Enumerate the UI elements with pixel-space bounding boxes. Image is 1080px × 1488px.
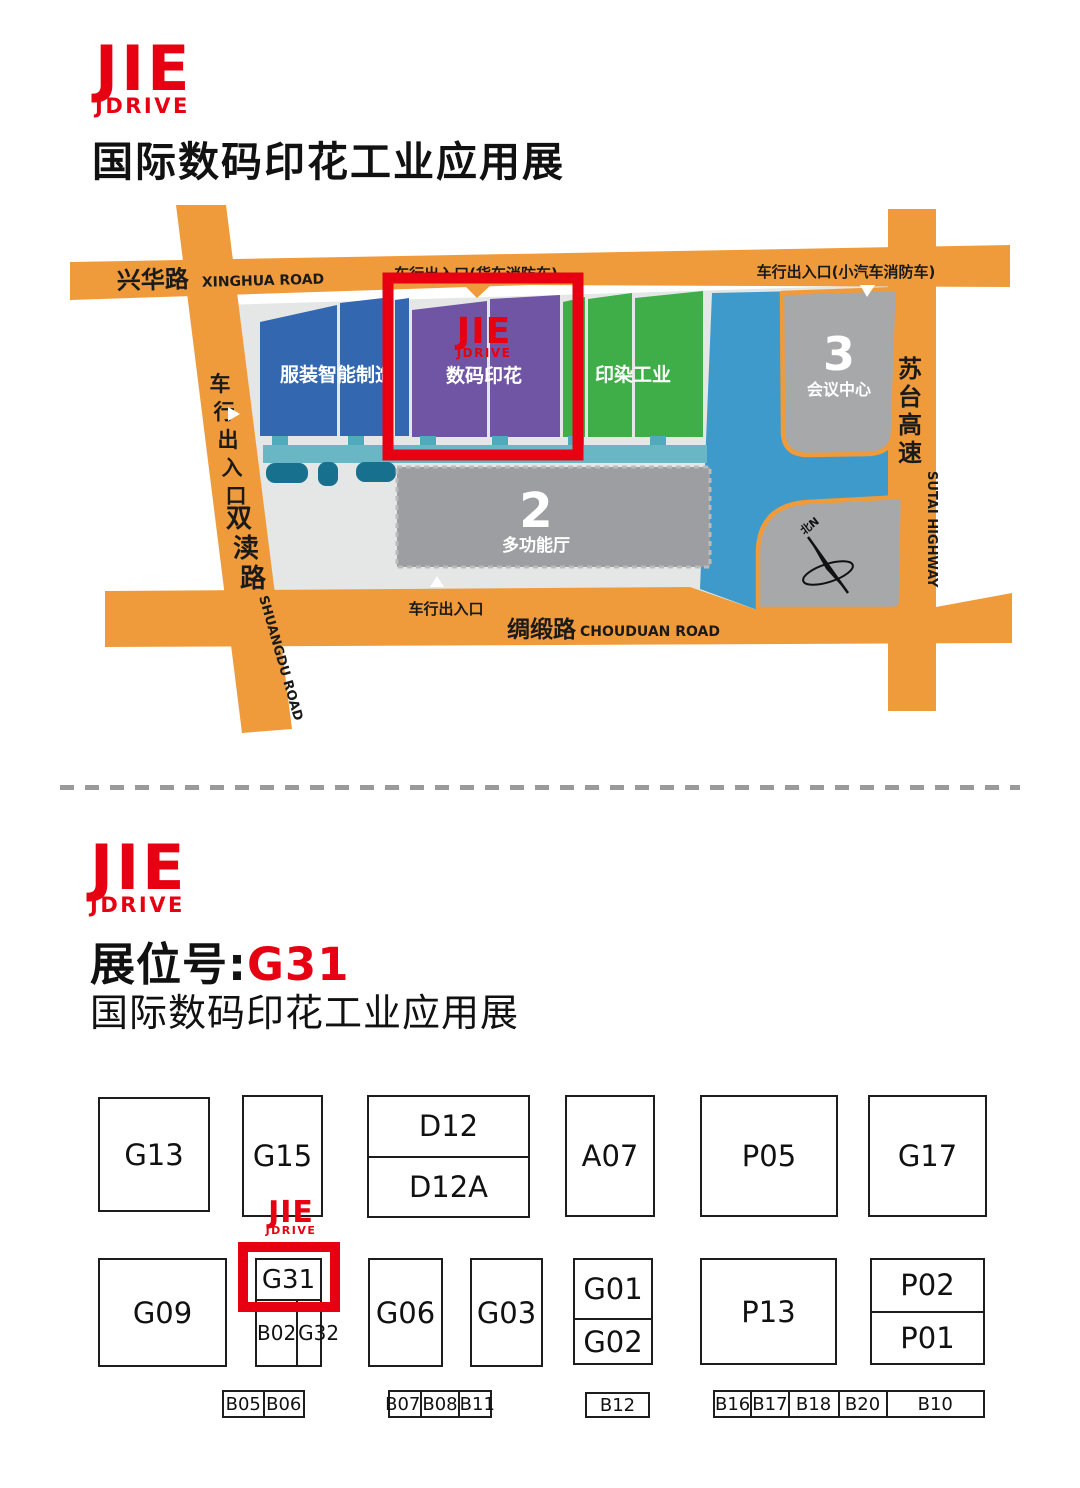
hall-garment-3 <box>395 298 409 436</box>
dock-support <box>650 436 666 446</box>
booth-p02: P02 <box>872 1260 983 1311</box>
booth-b05: B05 <box>224 1392 263 1416</box>
booth-b06: B06 <box>263 1392 304 1416</box>
booth-b05-b06-strip: B05 B06 <box>222 1390 305 1418</box>
brand-logo-jie: JIE <box>95 44 193 94</box>
booth-g06: G06 <box>368 1258 443 1367</box>
booth-p13: P13 <box>700 1258 837 1365</box>
brand-logo-jdrive: JDRIVE <box>257 1225 325 1237</box>
booth-d12-block: D12 D12A <box>367 1095 530 1218</box>
sutai-char: 速 <box>898 439 922 467</box>
hall2-number: 2 <box>519 483 552 539</box>
venue-map: 2 多功能厅 服装智能制造 JIE JDRIVE 数码印花 印染工业 3 会议中… <box>60 205 1020 765</box>
entrance-canopy-2 <box>318 462 338 486</box>
brand-logo-jie: JIE <box>257 1200 325 1225</box>
entrance-canopy-1 <box>266 463 308 483</box>
booth-b07: B07 <box>385 1392 420 1416</box>
sutai-highway-en: SUTAI HIGHWAY <box>924 471 939 588</box>
booth-b20: B20 <box>838 1392 886 1416</box>
booth-b18: B18 <box>788 1392 838 1416</box>
sutai-char: 台 <box>898 383 922 411</box>
west-gate-char: 出 <box>218 428 239 452</box>
highlight-frame-booth <box>238 1242 340 1312</box>
booth-b10: B10 <box>886 1392 983 1416</box>
dock-support <box>348 436 364 446</box>
booth-p02-p01-block: P02 P01 <box>870 1258 985 1365</box>
compass-island <box>758 497 903 609</box>
booth-a07: A07 <box>565 1095 655 1217</box>
brand-logo-jdrive: JDRIVE <box>95 94 193 118</box>
north-car-gate-label: 车行出入口(小汽车消防车) <box>757 263 936 281</box>
dock-support <box>420 436 436 446</box>
sutai-char: 高 <box>898 411 922 439</box>
booth-d12a: D12A <box>369 1156 528 1217</box>
south-gate-label: 车行出入口 <box>408 600 483 618</box>
west-gate-char: 入 <box>222 456 243 480</box>
brand-logo-jdrive: JDRIVE <box>90 893 188 917</box>
booth-logo-marker: JIE JDRIVE <box>257 1200 325 1237</box>
brand-logo: JIE JDRIVE <box>95 44 193 118</box>
booth-b08: B08 <box>420 1392 457 1416</box>
booth-b12-label: B12 <box>587 1394 648 1416</box>
section-divider <box>60 785 1020 790</box>
booth-b11: B11 <box>458 1392 495 1416</box>
booth-grid: G13 G15 D12 D12A A07 P05 G17 JIE JDRIVE … <box>60 1090 1020 1440</box>
hall-dyeing-label: 印染工业 <box>595 363 671 386</box>
west-gate-char: 车 <box>210 372 231 396</box>
booth-b16-b10-strip: B16 B17 B18 B20 B10 <box>713 1390 985 1418</box>
booth-p01: P01 <box>872 1311 983 1364</box>
booth-g03: G03 <box>470 1258 543 1367</box>
booth-g13: G13 <box>98 1097 210 1212</box>
north-gate-notch <box>463 284 492 298</box>
map-logo-jdrive: JDRIVE <box>456 346 512 360</box>
hall2-name: 多功能厅 <box>502 535 570 556</box>
sutai-char: 苏 <box>898 355 922 383</box>
booth-d12: D12 <box>369 1097 528 1156</box>
chouduan-road-zh: 绸缎路 <box>507 616 577 643</box>
shuangdu-char: 渎 <box>233 534 259 564</box>
booth-g02: G02 <box>575 1318 651 1363</box>
shuangdu-char: 路 <box>240 563 267 594</box>
shuangdu-char: 双 <box>226 504 252 534</box>
xinghua-road-zh: 兴华路 <box>116 265 190 295</box>
dock-support <box>492 436 508 446</box>
booth-g01-g02-block: G01 G02 <box>573 1258 653 1365</box>
hall-garment-label: 服装智能制造 <box>280 363 395 386</box>
booth-g17: G17 <box>868 1095 987 1217</box>
exhibition-title: 国际数码印花工业应用展 <box>92 128 565 188</box>
booth-b12: B12 <box>585 1392 650 1418</box>
booth-subtitle: 国际数码印花工业应用展 <box>90 982 519 1037</box>
brand-logo-2: JIE JDRIVE <box>90 843 188 917</box>
booth-b17: B17 <box>750 1392 787 1416</box>
booth-b07-b08-b11-strip: B07 B08 B11 <box>388 1390 492 1418</box>
dock-support <box>272 436 288 446</box>
hall3-name: 会议中心 <box>807 380 871 399</box>
booth-p05: P05 <box>700 1095 838 1217</box>
hall3-number: 3 <box>823 327 855 381</box>
hall-digital-label: 数码印花 <box>446 364 522 387</box>
booth-g09: G09 <box>98 1258 227 1367</box>
booth-b16: B16 <box>715 1392 750 1416</box>
xinghua-road-en: XINGHUA ROAD <box>202 272 325 291</box>
brand-logo-jie: JIE <box>90 843 188 893</box>
booth-g01: G01 <box>575 1260 651 1318</box>
entrance-canopy-3 <box>356 462 396 482</box>
chouduan-road-en: CHOUDUAN ROAD <box>580 624 720 640</box>
